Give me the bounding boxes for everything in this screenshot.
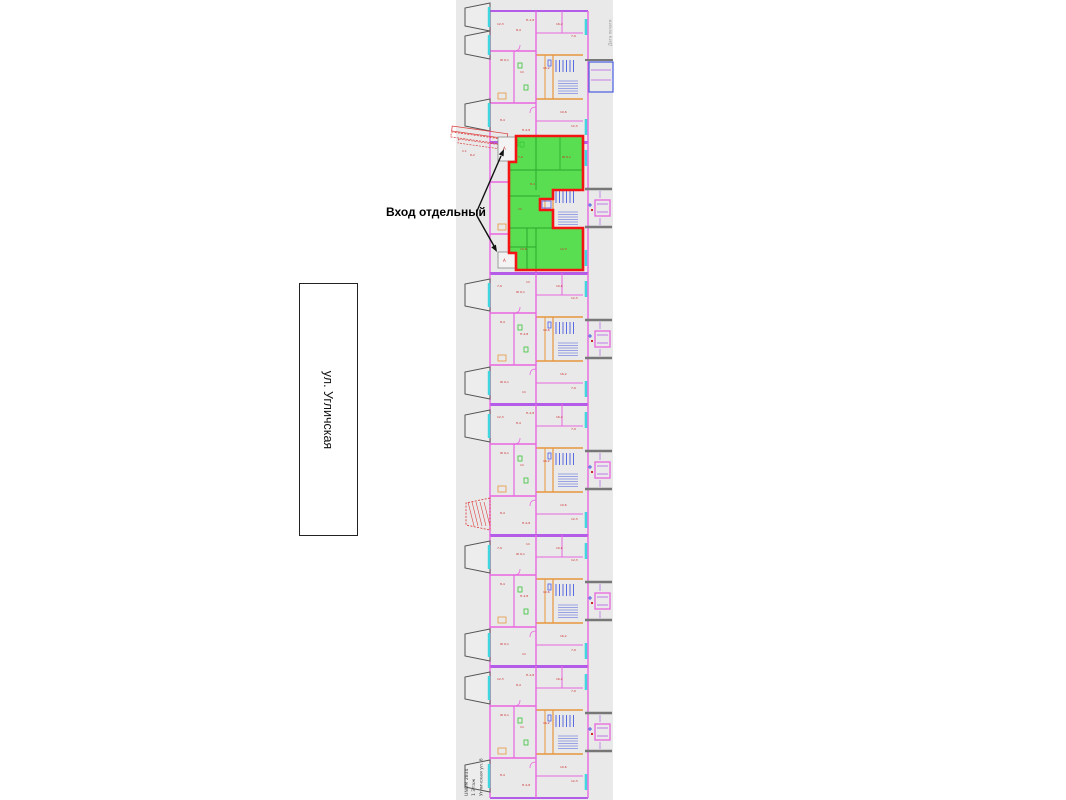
svg-text:7,9: 7,9 [497, 546, 502, 550]
print-stamp: Дата печати [608, 19, 613, 46]
svg-text:п.1: п.1 [462, 149, 467, 153]
svg-text:10,6: 10,6 [543, 590, 550, 594]
floor-plan-sheet: 12,38,4H-2,816,27,9Ж 6,11п10,612,38,4H-2… [0, 0, 1066, 800]
svg-text:1п: 1п [522, 390, 526, 394]
svg-text:12,3: 12,3 [571, 779, 578, 783]
svg-text:Ж 6,1: Ж 6,1 [562, 155, 571, 159]
svg-text:7,9: 7,9 [571, 386, 576, 390]
svg-text:H-2,8: H-2,8 [526, 411, 534, 415]
svg-text:8,2: 8,2 [470, 153, 475, 157]
svg-text:H-2,8: H-2,8 [522, 128, 530, 132]
svg-text:16,2: 16,2 [560, 372, 567, 376]
svg-text:12,3: 12,3 [571, 517, 578, 521]
street-label: ул. Угличская [322, 370, 336, 448]
svg-text:12,3: 12,3 [497, 677, 504, 681]
svg-text:7,9: 7,9 [497, 284, 502, 288]
svg-text:8,4: 8,4 [530, 182, 535, 186]
entrance-label: Вход отдельный [386, 205, 486, 219]
svg-text:12,3: 12,3 [571, 124, 578, 128]
svg-text:10,6: 10,6 [520, 247, 527, 251]
svg-text:8,4: 8,4 [516, 421, 521, 425]
svg-text:1п: 1п [520, 463, 524, 467]
svg-text:H-2,8: H-2,8 [520, 332, 528, 336]
svg-text:1п: 1п [520, 725, 524, 729]
svg-text:16,2: 16,2 [556, 415, 563, 419]
svg-text:1п: 1п [526, 542, 530, 546]
svg-text:8,4: 8,4 [500, 118, 505, 122]
svg-text:8,4: 8,4 [500, 511, 505, 515]
titleblock-unom: UNOM 2834 [464, 768, 470, 796]
svg-text:12,3: 12,3 [571, 558, 578, 562]
svg-text:7,9: 7,9 [571, 427, 576, 431]
svg-text:А: А [503, 258, 506, 263]
svg-text:10,6: 10,6 [560, 110, 567, 114]
svg-text:1п: 1п [518, 207, 522, 211]
svg-text:16,2: 16,2 [560, 634, 567, 638]
svg-text:1п: 1п [526, 280, 530, 284]
svg-text:8,4: 8,4 [500, 773, 505, 777]
svg-text:8,4: 8,4 [500, 320, 505, 324]
svg-text:Ж 6,1: Ж 6,1 [516, 552, 525, 556]
svg-text:16,2: 16,2 [543, 459, 550, 463]
street-label-box: ул. Угличская [299, 283, 358, 536]
svg-text:10,6: 10,6 [560, 765, 567, 769]
svg-text:12,3: 12,3 [560, 247, 567, 251]
svg-text:8,4: 8,4 [516, 683, 521, 687]
svg-text:Ж 6,1: Ж 6,1 [500, 713, 509, 717]
svg-text:8,4: 8,4 [500, 582, 505, 586]
svg-text:12,3: 12,3 [571, 296, 578, 300]
svg-text:H-2,8: H-2,8 [526, 673, 534, 677]
svg-text:Ж 6,1: Ж 6,1 [500, 642, 509, 646]
svg-text:7,9: 7,9 [571, 34, 576, 38]
titleblock-address: Угличская ул. 6 [479, 758, 485, 796]
svg-text:16,2: 16,2 [543, 721, 550, 725]
page: 12,38,4H-2,816,27,9Ж 6,11п10,612,38,4H-2… [0, 0, 1066, 800]
svg-text:H-2,8: H-2,8 [526, 18, 534, 22]
svg-text:10,6: 10,6 [556, 284, 563, 288]
svg-text:Ж 6,1: Ж 6,1 [500, 58, 509, 62]
svg-text:Ж 6,1: Ж 6,1 [500, 451, 509, 455]
svg-text:7,9: 7,9 [571, 648, 576, 652]
titleblock-floor: 1 Этаж [471, 779, 477, 796]
svg-text:16,2: 16,2 [556, 22, 563, 26]
svg-text:Ж 6,1: Ж 6,1 [516, 290, 525, 294]
svg-text:10,6: 10,6 [556, 546, 563, 550]
svg-text:1п: 1п [520, 70, 524, 74]
svg-text:8,4: 8,4 [516, 28, 521, 32]
svg-text:12,3: 12,3 [497, 22, 504, 26]
svg-text:Ж 6,1: Ж 6,1 [500, 380, 509, 384]
svg-text:7,9: 7,9 [571, 689, 576, 693]
svg-text:H-2,8: H-2,8 [522, 521, 530, 525]
svg-text:16,2: 16,2 [556, 677, 563, 681]
svg-text:10,6: 10,6 [543, 328, 550, 332]
svg-text:16,2: 16,2 [543, 66, 550, 70]
svg-text:H-2,8: H-2,8 [522, 783, 530, 787]
svg-text:H-2,8: H-2,8 [520, 594, 528, 598]
svg-text:12,3: 12,3 [497, 415, 504, 419]
svg-text:7,9: 7,9 [518, 155, 523, 159]
svg-text:1п: 1п [522, 652, 526, 656]
svg-text:10,6: 10,6 [560, 503, 567, 507]
